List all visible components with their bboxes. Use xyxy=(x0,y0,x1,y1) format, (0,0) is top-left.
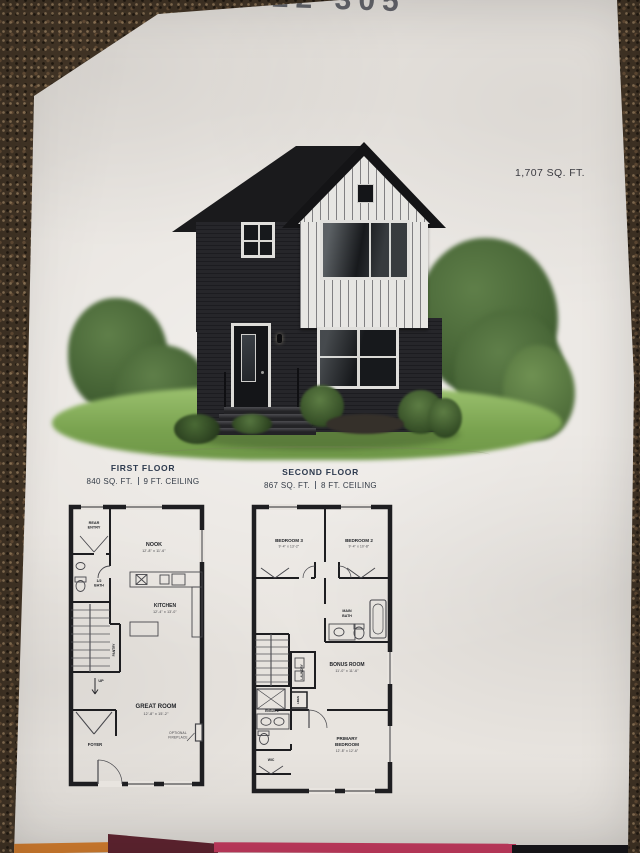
svg-text:BONUS ROOM: BONUS ROOM xyxy=(330,662,365,668)
plan-labels: BEDROOM 3 9'-4" x 13'-2" BEDROOM 2 9'-4"… xyxy=(265,538,373,762)
porch-light xyxy=(277,334,282,343)
window-mullion xyxy=(369,223,371,277)
second-floor-title: SECOND FLOOR xyxy=(238,467,403,477)
svg-text:REAR: REAR xyxy=(89,521,100,525)
door-glass xyxy=(241,334,256,382)
svg-text:9'-4" x 10'-8": 9'-4" x 10'-8" xyxy=(349,545,370,549)
window-mullion xyxy=(320,356,396,358)
window-mullion xyxy=(389,223,391,277)
window-mullion xyxy=(357,330,360,386)
svg-text:ENSUITE: ENSUITE xyxy=(265,709,279,713)
paper-sheet: 22 305 xyxy=(0,0,640,853)
svg-text:UP: UP xyxy=(98,679,104,683)
upper-gable-window xyxy=(320,220,410,280)
svg-text:NOOK: NOOK xyxy=(146,542,162,548)
svg-text:KITCHEN: KITCHEN xyxy=(154,603,177,609)
first-floor-plan: REAR ENTRY NOOK 12'-8" x 11'-6" 1/2 BATH… xyxy=(68,504,205,787)
svg-text:FIREPLACE: FIREPLACE xyxy=(168,735,188,739)
first-floor-specs: 840 SQ. FT.9 FT. CEILING xyxy=(48,477,238,486)
svg-text:9'-4" x 13'-2": 9'-4" x 13'-2" xyxy=(279,545,300,549)
svg-text:LAUNDRY: LAUNDRY xyxy=(300,663,304,679)
plan-stairs xyxy=(71,604,110,694)
window-mullion xyxy=(244,240,272,242)
upper-left-window xyxy=(241,222,275,258)
shrub xyxy=(232,414,272,434)
svg-text:BEDROOM 3: BEDROOM 3 xyxy=(275,538,303,543)
bottom-sheet-orange xyxy=(8,842,116,853)
photo-of-floorplan-sheet: 22 305 xyxy=(0,0,640,853)
svg-text:BEDROOM: BEDROOM xyxy=(335,742,359,747)
svg-text:12'-8" x 12'-6": 12'-8" x 12'-6" xyxy=(336,749,359,753)
shrub xyxy=(428,398,462,438)
door-knob xyxy=(261,371,264,374)
svg-text:12'-8" x 11'-6": 12'-8" x 11'-6" xyxy=(142,549,166,553)
svg-text:WIC: WIC xyxy=(268,758,275,762)
plan-stairs xyxy=(255,634,289,686)
second-floor-specs: 867 SQ. FT.8 FT. CEILING xyxy=(228,481,413,490)
svg-text:PANTRY: PANTRY xyxy=(112,643,116,657)
svg-text:12'-8" x 15'-2": 12'-8" x 15'-2" xyxy=(143,712,169,716)
svg-text:FOYER: FOYER xyxy=(88,742,102,747)
bottom-sheet-black xyxy=(512,845,640,853)
bottom-sheet-magenta xyxy=(214,842,516,853)
specs-divider xyxy=(315,481,316,489)
shrub xyxy=(174,414,220,444)
svg-text:12'-4" x 13'-0": 12'-4" x 13'-0" xyxy=(153,610,177,614)
attic-vent xyxy=(357,184,374,203)
specs-divider xyxy=(138,477,139,485)
svg-text:LINEN: LINEN xyxy=(296,696,300,704)
total-area-label: 1,707 SQ. FT. xyxy=(492,167,608,179)
svg-text:OPTIONAL: OPTIONAL xyxy=(169,731,187,735)
svg-text:GREAT ROOM: GREAT ROOM xyxy=(136,704,177,710)
first-floor-title: FIRST FLOOR xyxy=(63,463,223,473)
first-floor-area: 840 SQ. FT. xyxy=(87,477,133,486)
plan-walls xyxy=(254,507,390,791)
second-floor-ceiling: 8 FT. CEILING xyxy=(321,481,377,490)
first-floor-window xyxy=(317,327,399,389)
second-floor-plan: BEDROOM 3 9'-4" x 13'-2" BEDROOM 2 9'-4"… xyxy=(251,504,393,794)
mulch-bed xyxy=(326,414,404,434)
second-floor-area: 867 SQ. FT. xyxy=(264,481,310,490)
front-walk-edge xyxy=(150,446,490,464)
front-door xyxy=(234,326,268,411)
bottom-sheet-maroon xyxy=(108,834,218,853)
svg-text:BATH: BATH xyxy=(94,584,104,588)
svg-text:ENTRY: ENTRY xyxy=(88,526,101,530)
first-floor-ceiling: 9 FT. CEILING xyxy=(144,477,200,486)
svg-text:PRIMARY: PRIMARY xyxy=(336,736,357,741)
plan-fixtures xyxy=(257,566,386,774)
svg-text:11'-0" x 11'-6": 11'-0" x 11'-6" xyxy=(335,669,359,673)
svg-text:MAIN: MAIN xyxy=(342,609,352,613)
house-rendering xyxy=(0,0,640,470)
svg-text:BEDROOM 2: BEDROOM 2 xyxy=(345,538,373,543)
svg-text:1/2: 1/2 xyxy=(97,579,102,583)
front-door-trim xyxy=(231,323,271,411)
svg-text:BATH: BATH xyxy=(342,614,352,618)
